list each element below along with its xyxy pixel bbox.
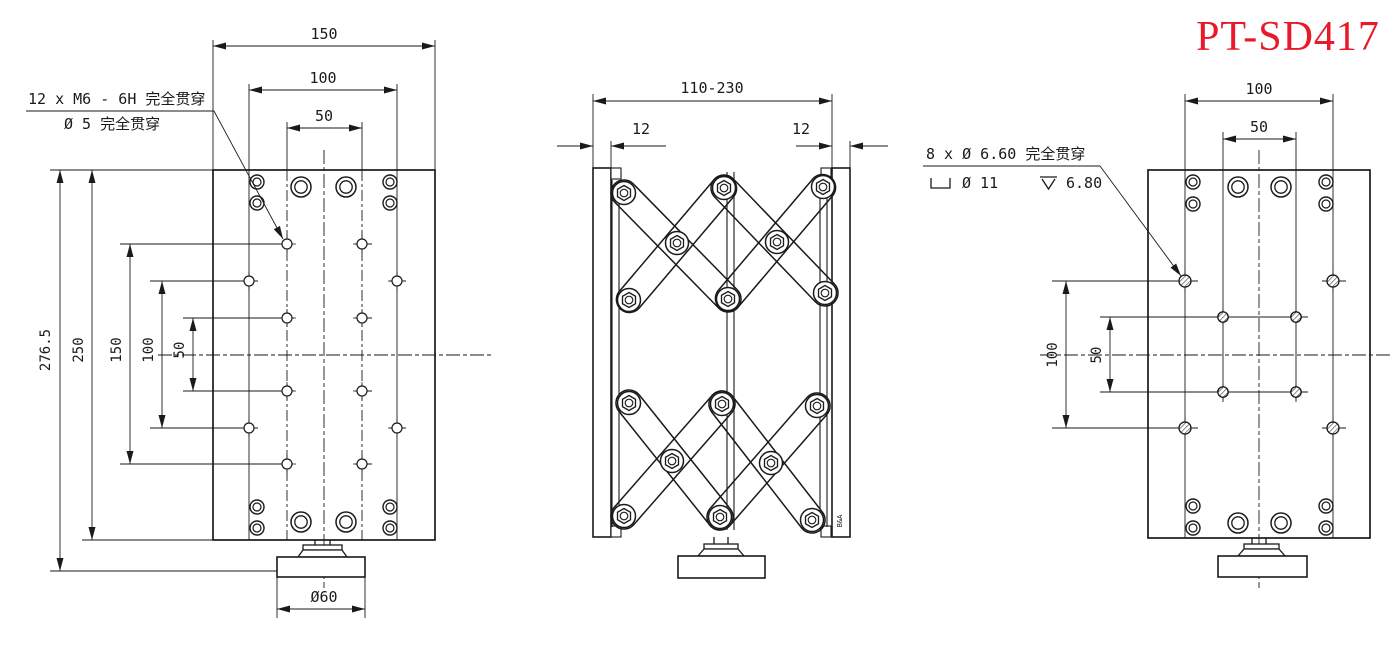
dim-hole-span-100: 100	[1245, 80, 1272, 98]
cbore-note-diameter: Ø 11	[962, 174, 998, 192]
top-view-foot	[277, 540, 365, 577]
cad-drawing: 150 100 50 276.5 250 150 100 50	[0, 0, 1400, 648]
scissor-arms	[611, 174, 838, 533]
dim-hole-span-100: 100	[309, 69, 336, 87]
side-view-foot	[678, 537, 765, 578]
bottom-view-foot	[1218, 538, 1307, 577]
dim-hole-rows-50: 50	[1089, 347, 1105, 364]
dim-plate-thickness-right: 12	[792, 120, 810, 138]
m6-note-line1: 12 x M6 - 6H 完全贯穿	[28, 90, 205, 108]
pivot-bolts	[613, 176, 837, 532]
dim-base-diameter: Ø60	[310, 588, 337, 606]
top-plate-view: 150 100 50 276.5 250 150 100 50	[26, 25, 492, 618]
dim-hole-rows-150: 150	[109, 337, 125, 362]
maker-mark: B&A	[836, 514, 844, 527]
dim-overall-height: 276.5	[38, 329, 54, 371]
depth-symbol-icon	[1042, 179, 1055, 189]
m6-note-line2: Ø 5 完全贯穿	[64, 115, 160, 133]
part-number-title: PT-SD417	[1196, 14, 1380, 60]
dim-hole-rows-100: 100	[141, 337, 157, 362]
side-view-dimensions	[557, 94, 888, 168]
dim-hole-rows-100: 100	[1045, 342, 1061, 367]
dim-travel-range: 110-230	[680, 79, 743, 97]
dim-plate-thickness-left: 12	[632, 120, 650, 138]
dim-hole-span-50: 50	[1250, 118, 1268, 136]
cbore-note-depth: 6.80	[1066, 174, 1102, 192]
engineering-drawing-page: 150 100 50 276.5 250 150 100 50	[0, 0, 1400, 648]
cbore-leader-note: 8 x Ø 6.60 完全贯穿 Ø 11 6.80	[923, 145, 1181, 276]
side-left-plate	[593, 168, 611, 537]
dim-hole-rows-50: 50	[172, 342, 188, 359]
top-plate-height-dimensions	[60, 170, 193, 571]
side-scissor-view: 110-230 12 12	[557, 79, 888, 578]
dim-plate-height: 250	[71, 337, 87, 362]
cbore-note-line1: 8 x Ø 6.60 完全贯穿	[926, 145, 1085, 163]
dim-hole-span-50: 50	[315, 107, 333, 125]
counterbore-symbol-icon	[931, 178, 950, 188]
dim-plate-width: 150	[310, 25, 337, 43]
bottom-plate-view: 100 50 100 50 8 x Ø 6.	[923, 80, 1392, 588]
side-right-plate	[832, 168, 850, 537]
side-view-plates	[593, 168, 850, 537]
